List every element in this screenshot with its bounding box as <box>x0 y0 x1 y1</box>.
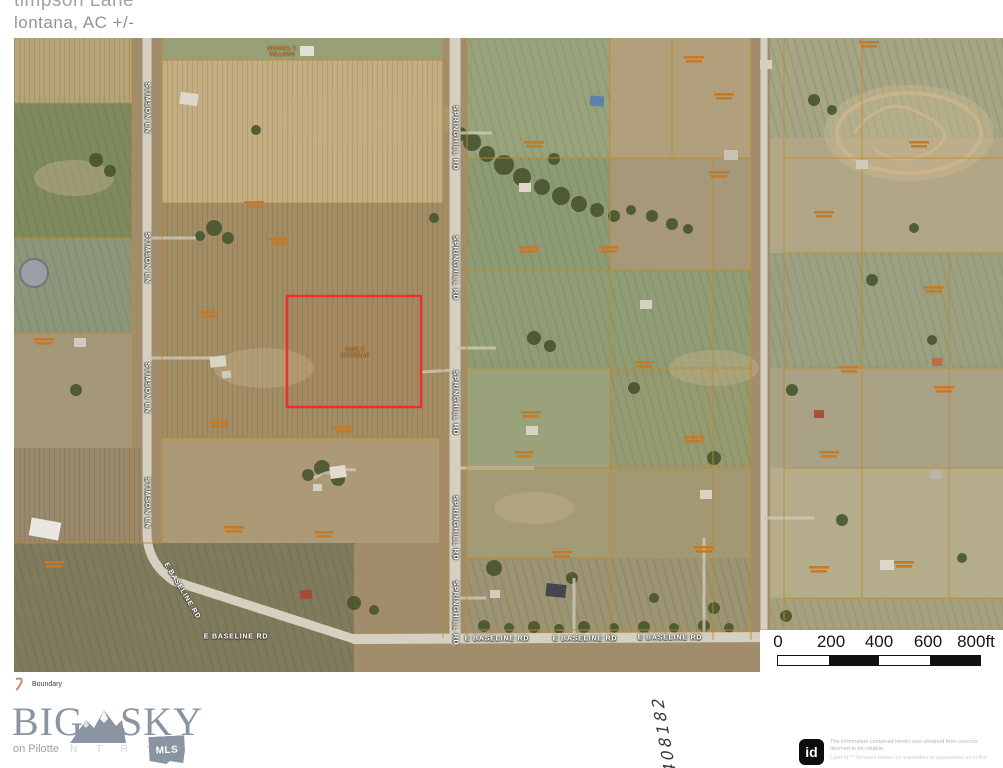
bare-ground-patches <box>34 85 994 524</box>
disclaimer-line2: deemed to be reliable. <box>830 746 987 753</box>
mountain-icon <box>70 706 126 744</box>
owner-label-marks <box>34 41 954 573</box>
disclaimer-line3: Land id™ Services makes no warranties or… <box>830 755 987 762</box>
trees <box>70 94 967 634</box>
road-label-springhill: SPRINGHILL RD <box>452 581 459 646</box>
road-label-stimson: STIMSON LN <box>144 232 151 283</box>
road-label-stimson: STIMSON LN <box>144 477 151 528</box>
road-label-baseline: E BASELINE RD <box>204 634 268 641</box>
road-label-baseline: E BASELINE RD <box>638 635 702 642</box>
road-label-baseline: E BASELINE RD <box>465 636 529 643</box>
road-label-springhill: SPRINGHILL RD <box>452 236 459 301</box>
scale-tick: 200 <box>817 632 845 652</box>
mls-badge-text: MLS <box>155 744 178 756</box>
agent-name: on Pilotte <box>13 743 59 755</box>
disclaimer-text: The information contained herein was obt… <box>830 739 987 765</box>
scanned-parcel-map-page: timpson Lane lontana, AC +/- <box>0 0 1003 768</box>
logo-country-watermark: N T R Y <box>70 744 161 755</box>
map-overlay-graphics <box>14 38 1003 672</box>
owner-label-line2: WILLOWS <box>267 52 297 58</box>
scale-tick: 0 <box>773 632 782 652</box>
listing-title-clipped: timpson Lane <box>14 0 414 13</box>
boundary-legend-icon <box>12 677 28 693</box>
scale-bar-segments <box>777 655 981 666</box>
road-label-springhill: SPRINGHILL RD <box>452 496 459 561</box>
road-label-stimson: STIMSON LN <box>144 362 151 413</box>
owner-label: MICHAEL C WILLOWS <box>267 46 297 58</box>
subject-owner-line2: BRIDEMAN <box>341 353 370 359</box>
water-tank <box>20 259 48 287</box>
disclaimer-block: id The information contained herein was … <box>799 739 1003 765</box>
road-label-springhill: SPRINGHILL RD <box>452 371 459 436</box>
scale-tick: 400 <box>865 632 893 652</box>
map-scale-bar: 0 200 400 600 800ft <box>760 630 1003 672</box>
scale-tick: 600 <box>914 632 942 652</box>
road-label-stimson: STIMSON LN <box>144 82 151 133</box>
subject-owner-label: CARL E BRIDEMAN <box>341 347 370 359</box>
boundary-legend-label: Boundary <box>32 681 62 688</box>
land-id-logo: id <box>799 739 824 765</box>
road-label-springhill: SPRINGHILL RD <box>452 106 459 171</box>
buildings <box>29 46 942 600</box>
road-label-baseline: E BASELINE RD <box>553 636 617 643</box>
handwritten-number: 408182 <box>645 682 681 768</box>
disclaimer-line1: The information contained herein was obt… <box>830 739 987 746</box>
logo-sky-text: SKY <box>120 702 203 742</box>
listing-title-text: timpson Lane <box>14 0 414 12</box>
mls-badge: MLS <box>148 735 185 765</box>
listing-subtitle: lontana, AC +/- <box>14 13 134 33</box>
scale-tick: 800ft <box>957 632 995 652</box>
aerial-parcel-map: STIMSON LN STIMSON LN STIMSON LN STIMSON… <box>14 38 1003 672</box>
